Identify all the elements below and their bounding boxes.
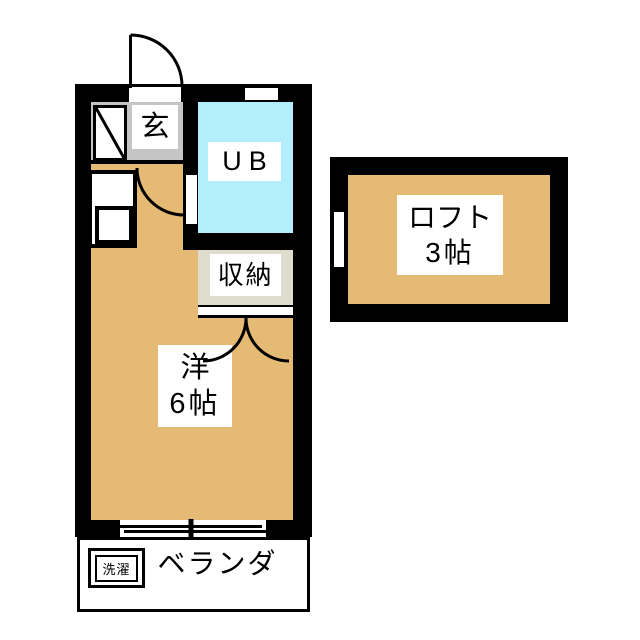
kitchen-sink [95,206,133,244]
veranda-label: ベランダ [150,545,285,579]
bath-window [245,88,278,100]
closet-label-text: 収納 [217,259,273,292]
sliding-window-opening [120,520,266,537]
western-room-name: 洋 [180,350,209,386]
bath-door-opening [186,175,197,224]
western-room-label: 洋 6帖 [158,345,232,427]
entrance-door-opening [129,87,181,102]
loft-window [334,212,344,267]
entry-label-text: 玄 [140,109,169,145]
laundry-label: 洗濯 [95,555,138,582]
shoe-cabinet [93,105,127,161]
unit-bath-label-text: UB [215,145,274,179]
loft-label: ロフト 3帖 [397,195,503,275]
loft-name: ロフト [408,200,492,235]
entry-label: 玄 [132,105,178,149]
floor-plan: 洗濯 ベランダ 玄 UB 収納 洋 6帖 ロフト 3帖 [0,0,640,640]
entrance-door-swing [131,35,183,86]
closet-door-opening [198,305,293,318]
loft-size: 3帖 [425,235,475,270]
closet-label: 収納 [210,254,281,296]
unit-bath-label: UB [208,142,281,181]
western-room-size: 6帖 [169,386,220,422]
bath-lower-wall [183,233,293,250]
